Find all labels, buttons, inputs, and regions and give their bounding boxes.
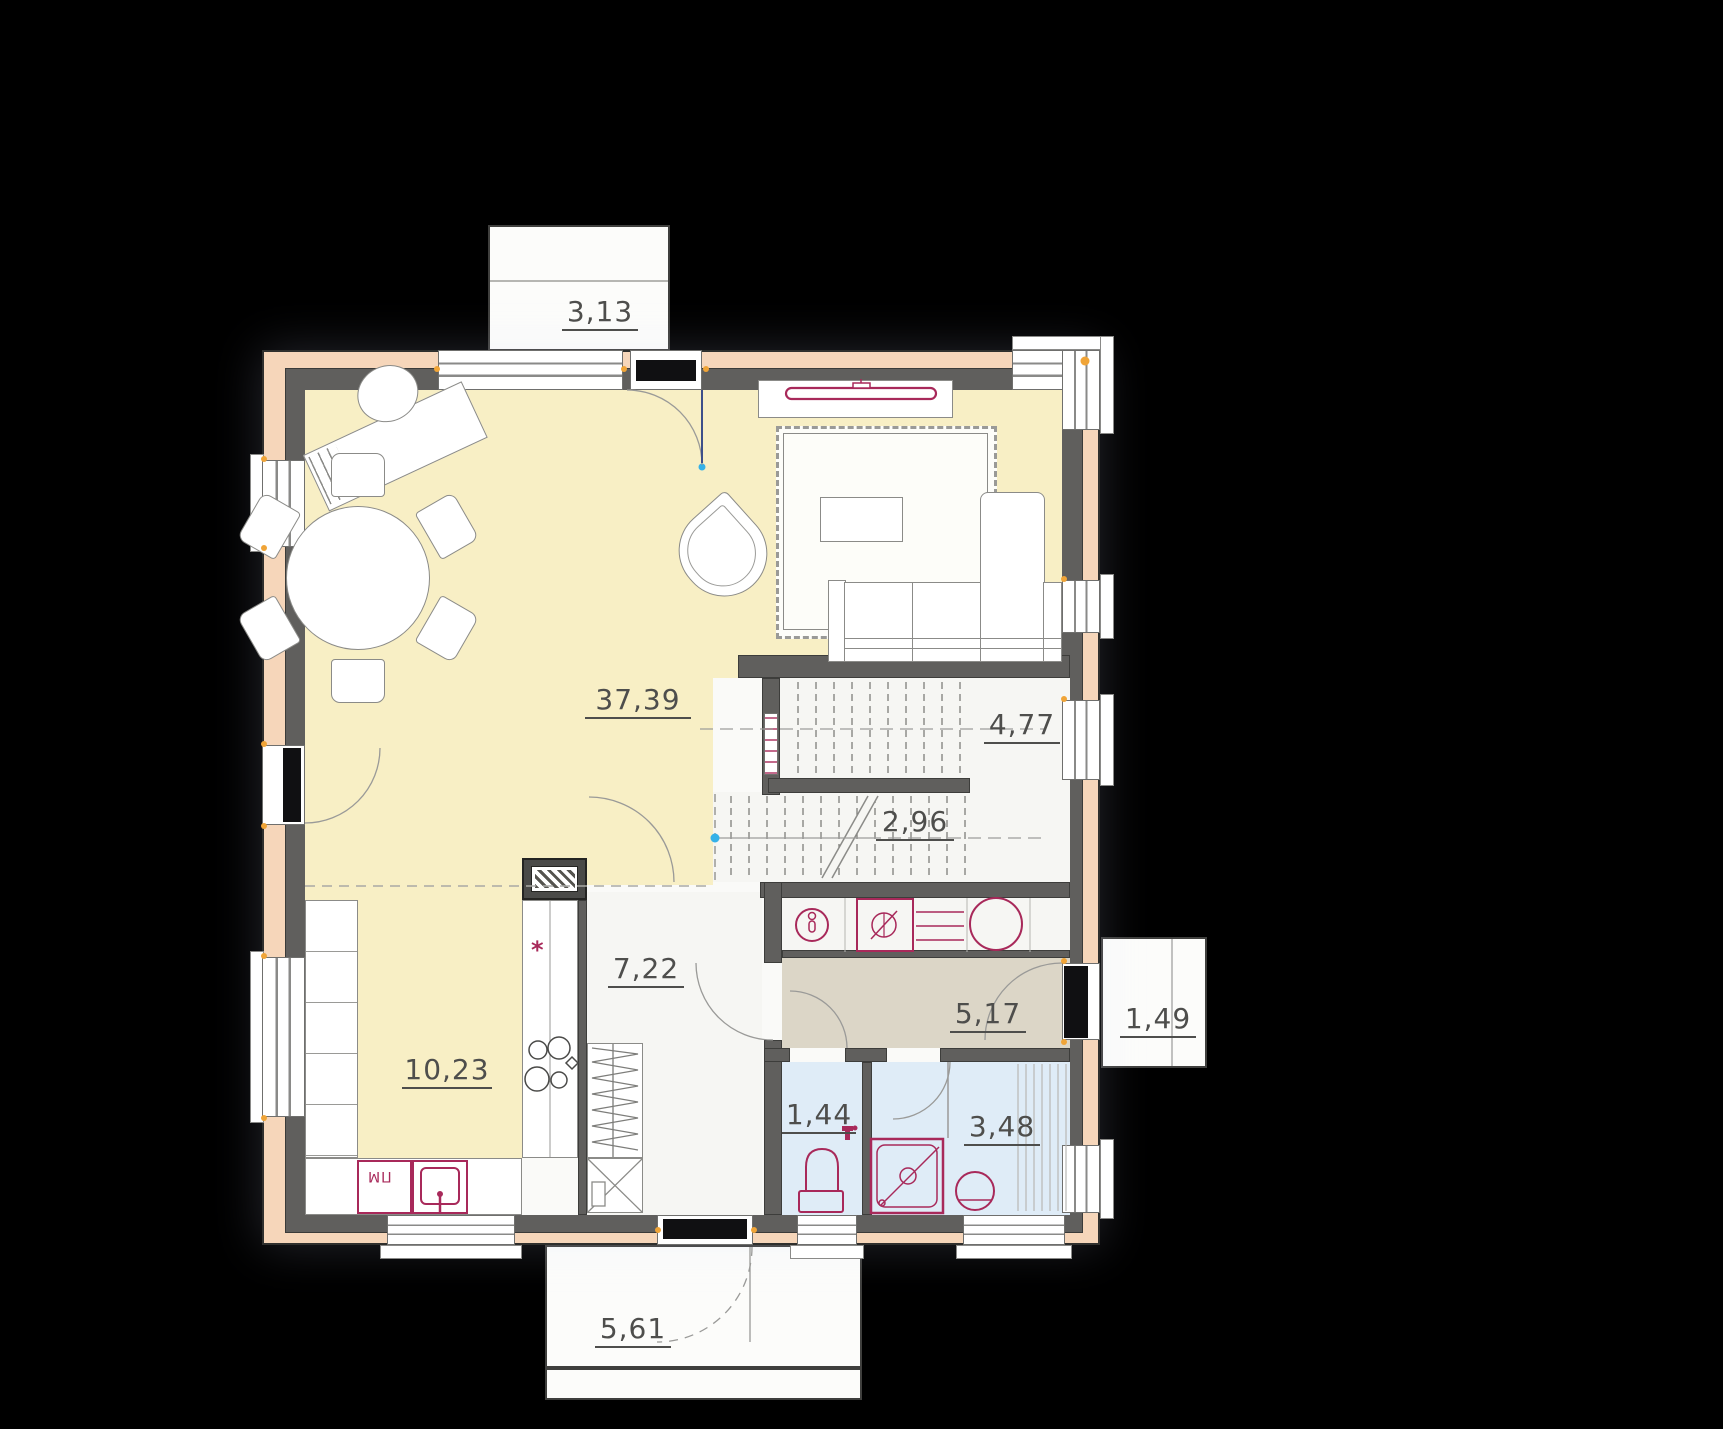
room-label-bathroom: 3,48 (964, 1111, 1040, 1146)
porch-door-leaf (663, 1219, 747, 1239)
stove-marker: * (531, 936, 544, 964)
window-sill (1100, 694, 1114, 786)
wc-bath-divider-wall (862, 1062, 872, 1215)
sofa-chaise (980, 492, 1045, 662)
corridor-bottom-wall (845, 1048, 887, 1062)
window-icon (797, 1215, 857, 1245)
kitchen-hall-wall (578, 900, 587, 1215)
room-label-kitchen: 10,23 (402, 1054, 492, 1089)
room-label-hallway: 7,22 (608, 953, 684, 988)
corridor-bottom-wall (764, 1048, 790, 1062)
room-technical-floor (782, 898, 1070, 952)
understairs-lower-wall (760, 882, 1070, 898)
coffee-table-icon (820, 497, 903, 542)
dining-chair-icon (331, 659, 385, 703)
corridor-top-wall (782, 950, 1070, 958)
window-icon (963, 1215, 1065, 1245)
kitchen-counter-left (305, 900, 358, 1158)
garden-porch (545, 1245, 862, 1368)
floor-plan-canvas: ПМ * (0, 0, 1723, 1429)
hallway-corridor-wall (764, 882, 782, 963)
sofa-icon (912, 582, 982, 662)
dishwasher-label: ПМ (367, 1168, 392, 1184)
room-kitchen-floor (358, 900, 522, 1158)
shoe-cabinet-icon (587, 1158, 643, 1213)
wardrobe-icon (587, 1043, 643, 1158)
dishwasher-icon: ПМ (357, 1160, 412, 1214)
hallway-corridor-wall (764, 1040, 782, 1215)
sofa-back-lines (845, 638, 1061, 649)
corner-window-icon (1062, 350, 1100, 430)
chimney-flue (531, 866, 578, 892)
room-label-terrace: 3,13 (562, 296, 638, 331)
room-corridor-floor (782, 958, 1070, 1048)
room-label-living: 37,39 (585, 684, 691, 719)
dining-table-icon (286, 506, 430, 650)
window-icon (1062, 1145, 1100, 1213)
terrace-top (488, 225, 670, 351)
stair-mid-wall (768, 778, 970, 793)
sofa-icon (844, 582, 914, 662)
room-label-stairs-upper: 4,77 (984, 709, 1060, 744)
dining-chair-icon (331, 453, 385, 497)
window-sill (1100, 336, 1114, 434)
garden-porch-step (545, 1368, 862, 1400)
room-wc-floor (782, 1062, 862, 1215)
kitchen-sink-icon (412, 1160, 468, 1214)
sofa-armrest (1043, 582, 1062, 662)
room-label-wc: 1,44 (782, 1099, 856, 1134)
understairs-panel (764, 713, 778, 775)
window-sill (1100, 1139, 1114, 1219)
terrace-door-leaf (636, 360, 696, 381)
room-label-entry-porch: 1,49 (1120, 1003, 1196, 1038)
room-label-stairs-lower: 2,96 (876, 806, 954, 841)
window-sill (1100, 574, 1114, 639)
chimney-hatch (535, 870, 575, 888)
corridor-bottom-wall (940, 1048, 1070, 1062)
room-label-corridor: 5,17 (950, 998, 1026, 1033)
window-sill (790, 1245, 864, 1259)
window-icon (1062, 580, 1100, 633)
window-icon (262, 957, 305, 1117)
room-label-garden-porch: 5,61 (595, 1313, 671, 1348)
window-icon (1062, 700, 1100, 780)
tv-stand (758, 380, 953, 418)
window-sill (380, 1245, 522, 1259)
window-icon (387, 1215, 515, 1245)
window-sill (956, 1245, 1072, 1259)
window-sill (1012, 336, 1114, 350)
side-door-leaf (283, 748, 301, 822)
front-door-leaf (1064, 966, 1088, 1038)
